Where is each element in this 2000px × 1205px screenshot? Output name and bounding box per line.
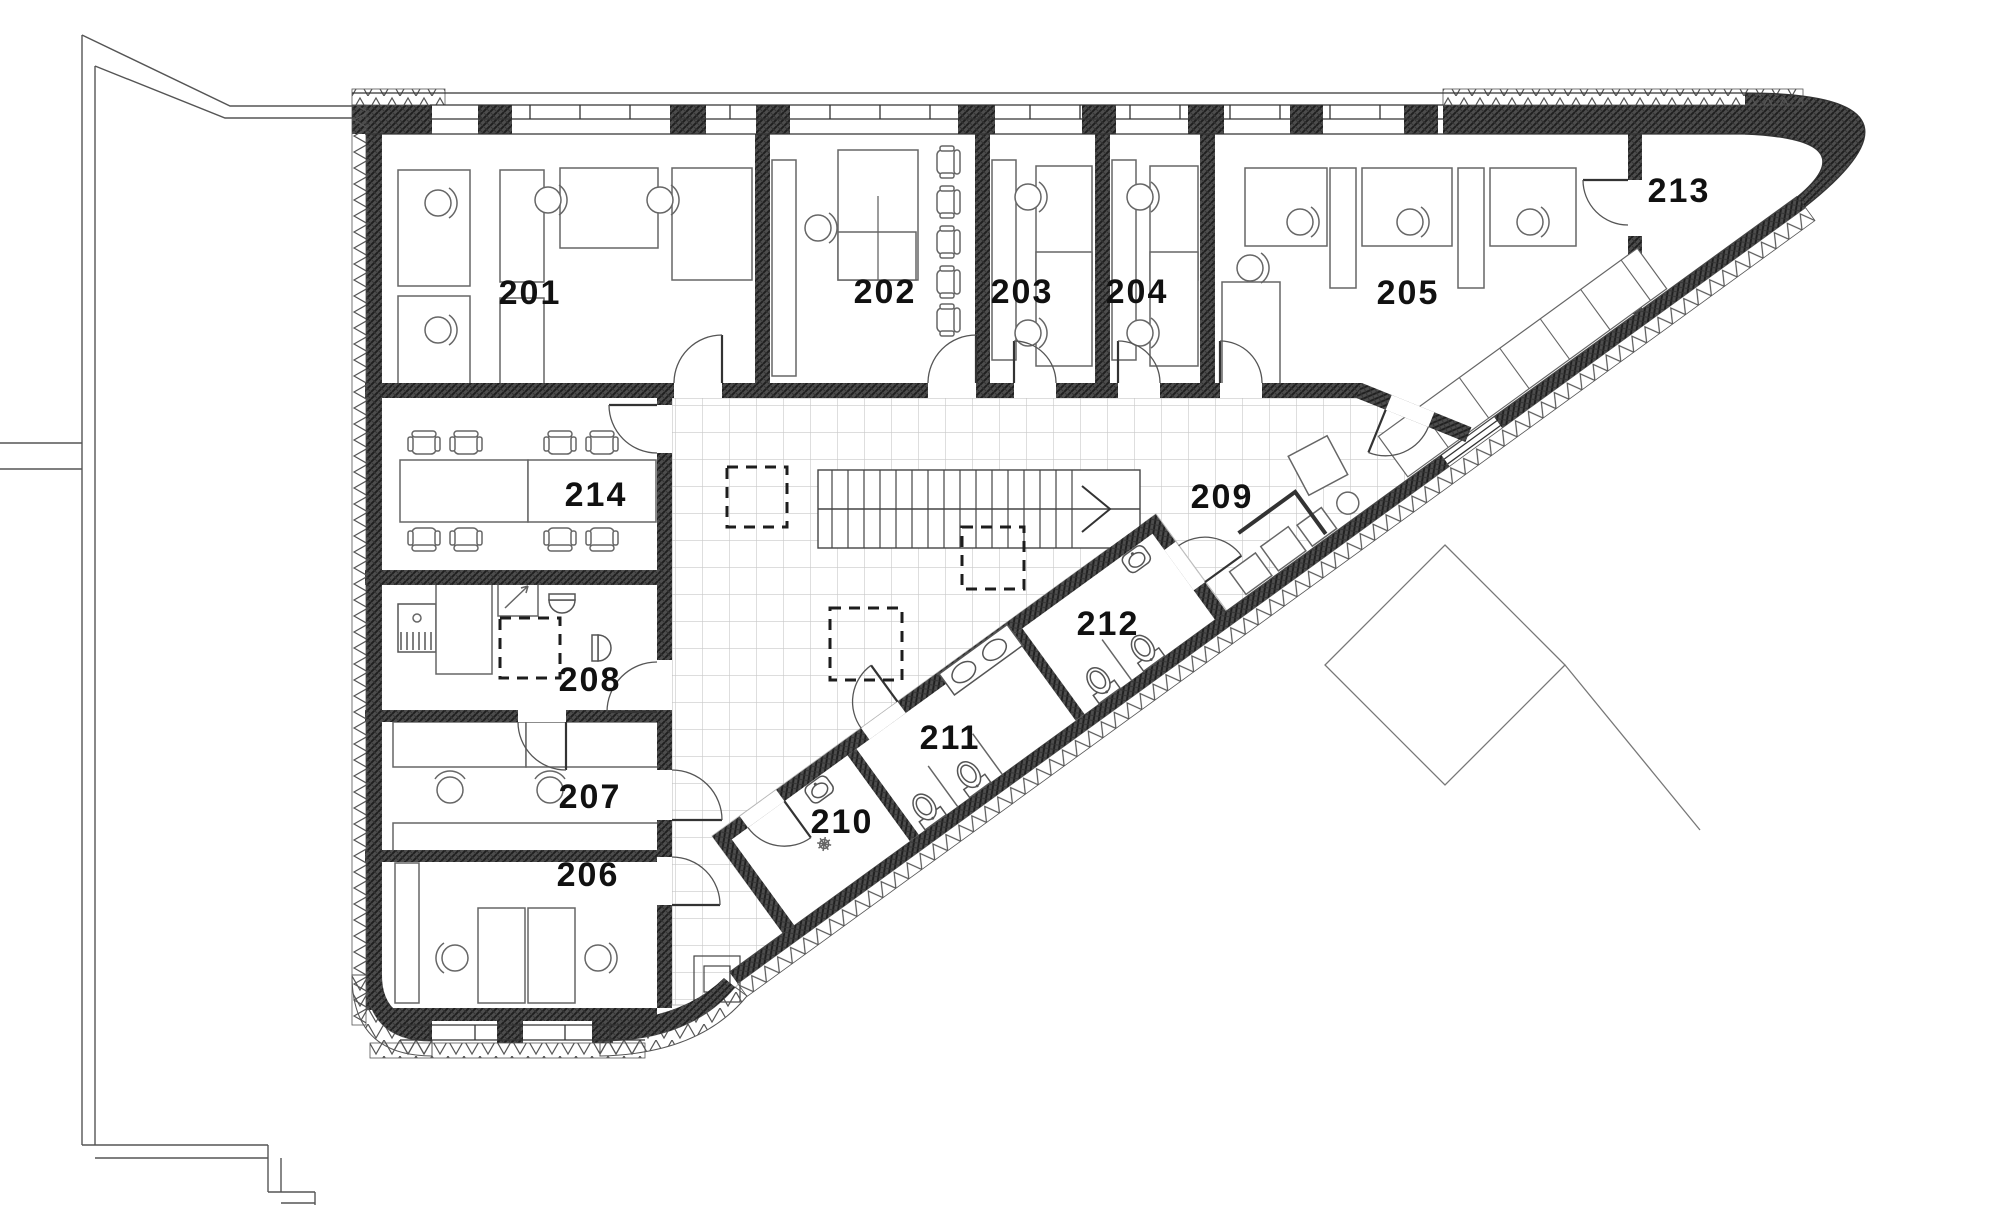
room-label-205: 205	[1377, 274, 1440, 312]
room-label-207: 207	[559, 778, 622, 816]
room-label-213: 213	[1648, 172, 1711, 210]
room-label-208: 208	[559, 661, 622, 699]
room-204-furniture	[1112, 160, 1198, 366]
floor-plan-page: 201 202 203 204 205 213 214 208 207 206 …	[0, 0, 2000, 1205]
room-label-209: 209	[1191, 478, 1254, 516]
room-label-210: 210	[811, 803, 874, 841]
room-label-201: 201	[499, 274, 562, 312]
room-label-203: 203	[991, 273, 1054, 311]
room-label-214: 214	[565, 476, 628, 514]
room-label-202: 202	[854, 273, 917, 311]
room-label-211: 211	[920, 719, 981, 757]
floor-plan-drawing: 201 202 203 204 205 213 214 208 207 206 …	[0, 0, 2000, 1205]
room-label-206: 206	[557, 856, 620, 894]
room-label-212: 212	[1077, 605, 1140, 643]
room-203-furniture	[992, 160, 1092, 366]
staircase	[818, 470, 1140, 548]
room-label-204: 204	[1106, 273, 1169, 311]
